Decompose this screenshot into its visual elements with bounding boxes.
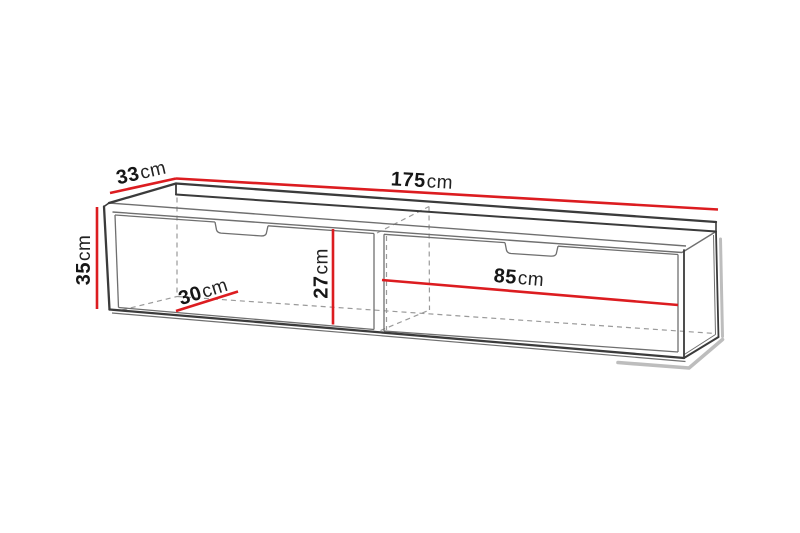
shadow-right-edge (721, 239, 723, 337)
dimension-label-inner-depth: 30cm (176, 274, 231, 310)
diagram-canvas: 33cm 175cm 35cm 30cm 27cm 85cm (0, 0, 800, 533)
top-panel-thickness-edge (176, 195, 716, 232)
width-value: 175 (390, 168, 426, 192)
bottom-panel-lower-edge (112, 313, 686, 362)
width-unit: cm (426, 171, 453, 193)
hidden-divider-back-edge (429, 207, 430, 311)
left-door-handle-notch (215, 222, 268, 236)
right-door-handle-notch (505, 243, 558, 257)
right-side-back-edge (716, 232, 719, 338)
dimension-label-compartment-width: 85cm (493, 265, 545, 291)
inner-height-value: 27 (311, 276, 333, 299)
compartment-width-unit: cm (517, 268, 545, 291)
carcass-front-top-edge (113, 212, 683, 253)
svg-text:27cm: 27cm (311, 248, 333, 299)
right-side-top-edge (682, 232, 716, 253)
right-side-inner-edge (714, 235, 716, 335)
height-unit: cm (74, 235, 95, 261)
svg-text:33cm: 33cm (114, 157, 168, 190)
svg-text:35cm: 35cm (73, 235, 95, 286)
svg-text:175cm: 175cm (390, 168, 453, 194)
furniture-dimension-diagram: 33cm 175cm 35cm 30cm 27cm 85cm (0, 0, 800, 533)
inner-depth-unit: cm (199, 275, 230, 303)
dimension-label-height: 35cm (73, 235, 95, 286)
carcass-left-edge (104, 207, 110, 310)
left-door-left-edge (115, 215, 119, 308)
svg-text:30cm: 30cm (176, 274, 231, 310)
height-value: 35 (73, 262, 95, 285)
inner-height-unit: cm (312, 248, 333, 274)
dimension-label-inner-height: 27cm (311, 248, 333, 299)
svg-text:85cm: 85cm (493, 265, 545, 291)
compartment-width-value: 85 (493, 265, 518, 289)
dimension-label-width: 175cm (390, 168, 453, 194)
right-side-inner-bottom-edge (684, 335, 716, 356)
depth-value: 33 (114, 163, 142, 190)
dimension-label-depth: 33cm (114, 157, 168, 190)
carcass-bottom-edge (110, 310, 685, 359)
hidden-edges (122, 198, 715, 334)
hidden-divider-bottom-depth-edge (381, 310, 430, 331)
left-door-bottom-edge (119, 308, 375, 330)
